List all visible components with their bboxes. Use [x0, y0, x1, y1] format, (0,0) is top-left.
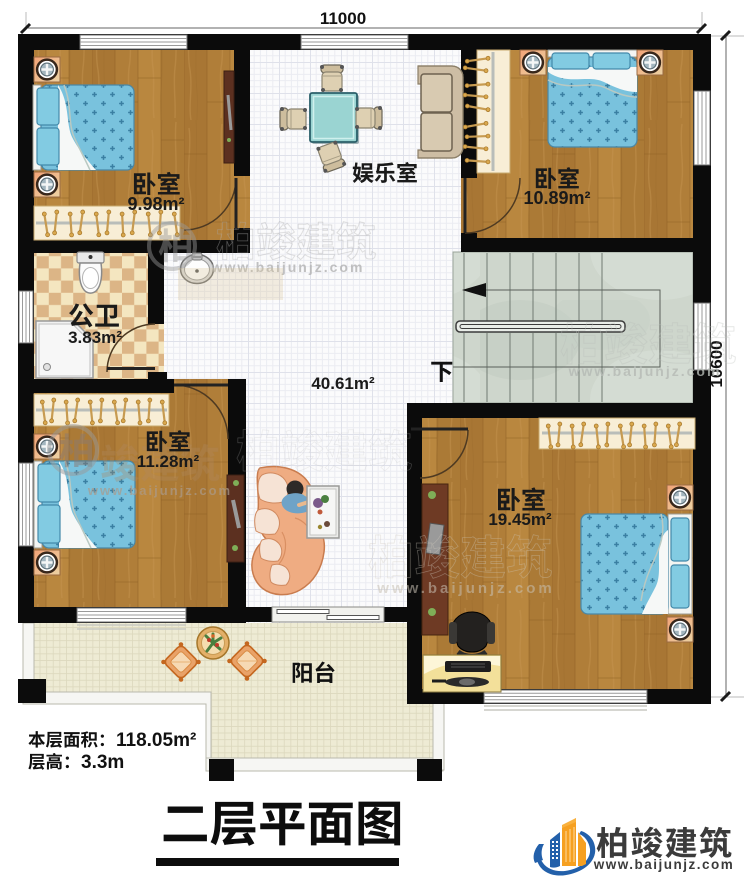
svg-text:118.05m²: 118.05m² — [116, 730, 196, 751]
svg-text:19.45m²: 19.45m² — [488, 510, 552, 529]
svg-text:40.61m²: 40.61m² — [311, 374, 375, 393]
svg-text:11.28m²: 11.28m² — [137, 452, 200, 471]
svg-text:www.baijunjz.com: www.baijunjz.com — [376, 580, 554, 597]
svg-text:www.baijunjz.com: www.baijunjz.com — [593, 857, 735, 872]
svg-text:www.baijunjz.com: www.baijunjz.com — [87, 483, 232, 498]
svg-text:10.89m²: 10.89m² — [523, 188, 590, 208]
svg-text:9.98m²: 9.98m² — [127, 194, 184, 214]
svg-text:11000: 11000 — [320, 9, 366, 28]
svg-text:www.baijunjz.com: www.baijunjz.com — [568, 363, 722, 379]
svg-text:3.3m: 3.3m — [81, 752, 124, 773]
svg-text:3.83m²: 3.83m² — [68, 328, 122, 347]
